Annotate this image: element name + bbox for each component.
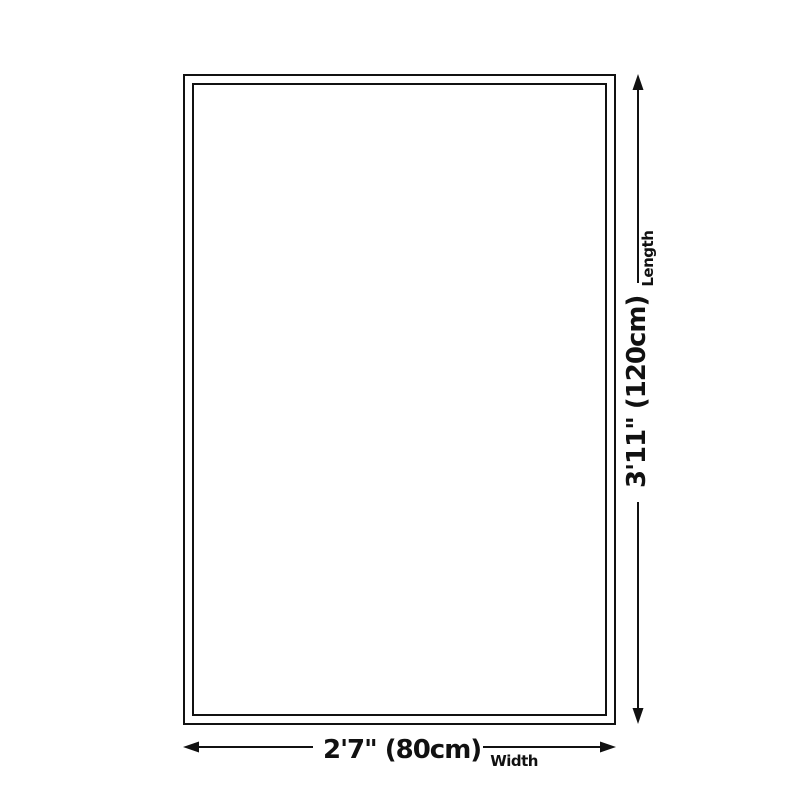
arrow-up-icon — [633, 74, 644, 90]
length-dimension-label: 3'11" (120cm) Length — [624, 238, 656, 488]
length-caption: Length — [641, 231, 656, 287]
length-value: 3'11" (120cm) — [624, 296, 650, 488]
rug-inner-border — [193, 84, 606, 715]
arrow-right-icon — [600, 742, 616, 753]
width-caption: Width — [490, 754, 538, 769]
arrow-down-icon — [633, 708, 644, 724]
size-diagram: 2'7" (80cm) Width 3'11" (120cm) Length — [0, 0, 800, 800]
size-diagram-drawing — [0, 0, 800, 800]
width-value: 2'7" (80cm) — [323, 737, 481, 763]
rug-outer-border — [184, 75, 615, 724]
arrow-left-icon — [183, 742, 199, 753]
width-dimension-label: 2'7" (80cm) Width — [323, 737, 538, 769]
